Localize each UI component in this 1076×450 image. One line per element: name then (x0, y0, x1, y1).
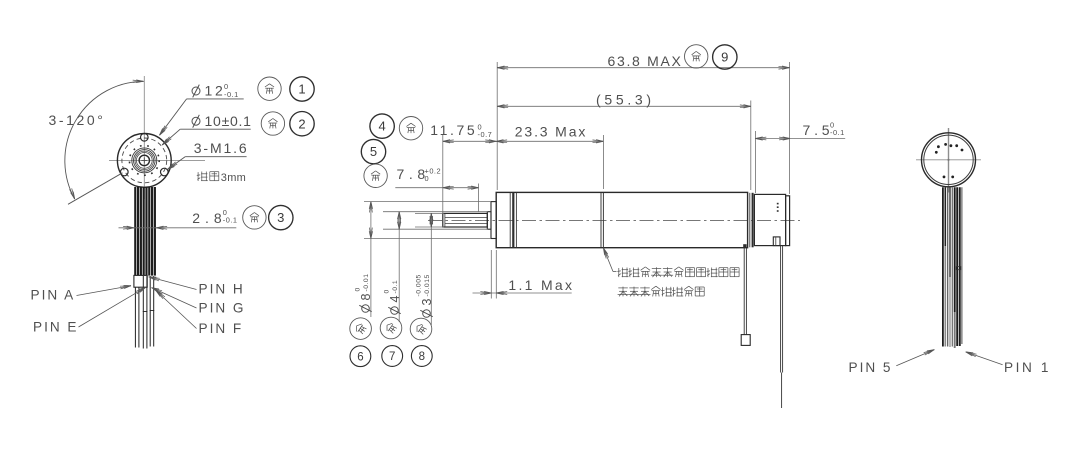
svg-text:2: 2 (298, 116, 305, 131)
svg-text:4: 4 (388, 295, 402, 303)
svg-text:PIN 1: PIN 1 (1004, 360, 1051, 375)
svg-text:10±0.1: 10±0.1 (205, 113, 252, 129)
svg-text:PIN A: PIN A (31, 288, 76, 303)
svg-text:3-M1.6: 3-M1.6 (194, 140, 249, 156)
svg-text:23.3 Max: 23.3 Max (515, 124, 587, 140)
svg-text:5: 5 (370, 144, 377, 159)
svg-text:PIN F: PIN F (199, 321, 244, 336)
svg-text:-0.1: -0.1 (223, 216, 238, 225)
svg-text:-0.01: -0.01 (363, 274, 370, 292)
svg-text:2.8: 2.8 (192, 210, 226, 226)
svg-text:PIN E: PIN E (33, 320, 79, 335)
svg-text:3mm: 3mm (221, 172, 246, 184)
svg-text:1: 1 (298, 82, 305, 97)
svg-text:8: 8 (419, 351, 425, 363)
svg-text:3-120°: 3-120° (49, 112, 106, 128)
svg-text:11.75: 11.75 (430, 122, 477, 138)
svg-text:63.8 MAX: 63.8 MAX (608, 53, 683, 69)
svg-text:-0.015: -0.015 (424, 274, 431, 296)
svg-text:-0.1: -0.1 (392, 280, 399, 294)
svg-text:-0.1: -0.1 (830, 128, 845, 137)
svg-text:0: 0 (355, 287, 362, 291)
svg-text:3: 3 (420, 298, 434, 306)
svg-text:6: 6 (357, 351, 363, 363)
svg-text:-0.7: -0.7 (478, 130, 493, 139)
svg-text:0: 0 (425, 174, 430, 183)
svg-text:(55.3): (55.3) (596, 92, 655, 108)
svg-text:7: 7 (389, 351, 395, 363)
svg-text:-0.1: -0.1 (224, 90, 239, 99)
svg-text:8: 8 (359, 293, 373, 301)
svg-text:1.1 Max: 1.1 Max (508, 277, 574, 293)
svg-text:PIN 5: PIN 5 (849, 360, 893, 375)
svg-text:-0.005: -0.005 (416, 274, 423, 296)
svg-text:12: 12 (205, 83, 226, 99)
svg-text:4: 4 (378, 119, 385, 134)
svg-text:0: 0 (384, 289, 391, 293)
svg-text:PIN G: PIN G (199, 301, 246, 316)
svg-text:7.5: 7.5 (803, 122, 834, 138)
svg-text:9: 9 (721, 50, 728, 65)
svg-text:3: 3 (277, 210, 284, 225)
svg-text:PIN H: PIN H (199, 282, 245, 297)
